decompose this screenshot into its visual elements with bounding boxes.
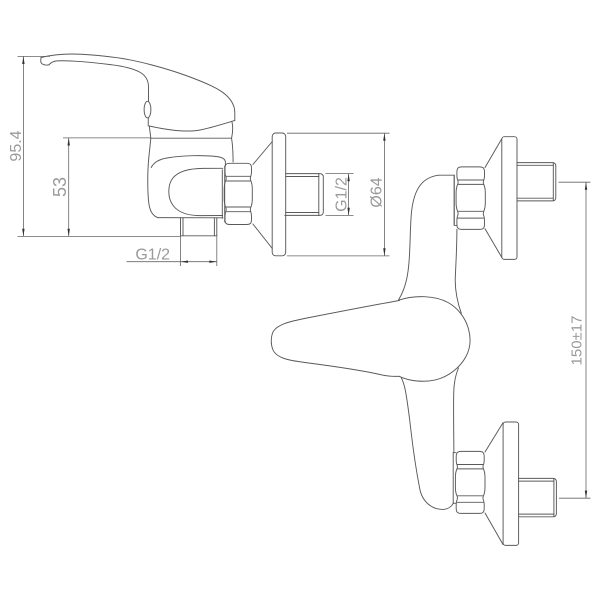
svg-text:150±17: 150±17 <box>569 316 586 366</box>
svg-text:G1/2: G1/2 <box>333 177 350 212</box>
svg-text:95.4: 95.4 <box>8 130 25 161</box>
svg-text:Ø64: Ø64 <box>369 177 386 207</box>
svg-text:G1/2: G1/2 <box>135 246 170 263</box>
svg-text:53: 53 <box>50 177 70 197</box>
